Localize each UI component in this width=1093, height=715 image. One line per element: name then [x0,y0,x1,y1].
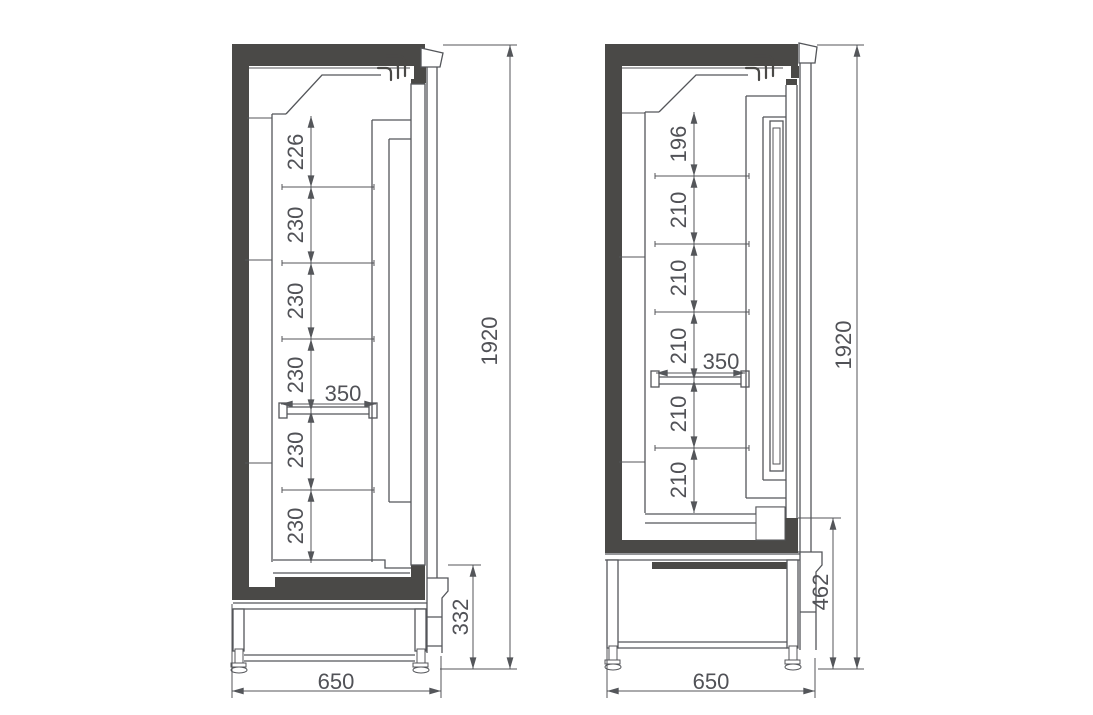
dim-label-overall-height: 1920 [477,317,502,366]
left-back-panel-brackets [245,118,272,463]
shelf [655,309,749,315]
left-air-duct-line [286,75,381,114]
dim-label-base-height: 462 [808,574,833,611]
left-front-duct-bottom-block [411,565,425,587]
left-dim-base-height: 332 [448,565,481,669]
dimensioned-shelf [282,407,375,414]
shelf [655,241,749,247]
right-base-bottom-rails [618,642,787,648]
left-back-wall [232,44,249,600]
right-base-leg [607,560,618,648]
right-dim-base-height: 462 [798,518,841,669]
left-front-outer-panel [427,67,437,578]
right-top-wall-front-block [791,66,799,78]
left-front-inner-panel [372,120,411,562]
shelf [282,184,374,190]
left-interior [245,68,411,573]
dim-label-spacing: 210 [666,192,691,229]
shelf-end-cap [279,403,287,418]
left-bottom-wall [249,587,425,600]
shelf [655,173,749,179]
right-top-wall [605,44,798,66]
dim-label-spacing: 196 [666,126,691,163]
dim-label-spacing: 210 [666,328,691,365]
dim-label-overall-width: 650 [693,669,730,694]
left-front-assembly [372,48,448,653]
left-floor [273,560,411,573]
right-bottom-wall [605,540,798,553]
right-dim-overall-width: 650 [607,604,815,698]
glass-door-frame [786,85,797,518]
shelf [282,487,374,493]
left-base-bottom-rails [244,655,415,661]
right-adjustable-foot [785,646,801,670]
dim-label-spacing: 230 [283,207,308,244]
dim-label-spacing: 230 [283,432,308,469]
right-base-leg [787,560,798,648]
left-dim-overall-width: 650 [232,604,441,698]
dim-label-spacing: 226 [283,134,308,171]
left-canopy-cap [421,48,443,67]
dim-label-spacing: 210 [666,462,691,499]
dim-label-overall-width: 650 [318,669,355,694]
cabinet-sections-drawing: 226 230 230 230 230 230 350 1920 332 650 [0,0,1093,715]
left-back-panel [272,114,286,562]
right-door-bottom-block [785,518,798,541]
right-front-outer-panel [800,63,811,552]
right-base-top-rails [605,554,800,560]
shelf [282,260,374,266]
shelf [655,445,749,451]
right-door-top-cap [786,79,797,85]
right-view: 196 210 210 210 210 210 350 1920 462 650 [605,43,864,698]
dimensioned-shelf [655,377,748,384]
dim-label-base-height: 332 [448,599,473,636]
glass-door-pane-inner [773,128,780,464]
right-air-duct-line [659,75,748,112]
dim-label-spacing: 230 [283,357,308,394]
left-front-duct [411,84,425,565]
dim-label-spacing: 230 [283,508,308,545]
right-back-panel-brackets [619,113,645,462]
dim-label-overall-height: 1920 [831,321,856,370]
left-base-top-rails [233,603,427,609]
dim-label-spacing: 210 [666,260,691,297]
left-front-kick-panel [427,578,448,653]
shelf-end-cap [369,403,377,418]
left-base-frame [231,603,429,673]
right-floor-step [756,507,785,540]
right-interior [619,68,785,540]
left-view: 226 230 230 230 230 230 350 1920 332 650 [231,44,517,698]
dim-label-shelf-depth: 350 [325,381,362,406]
technical-drawing-canvas: 226 230 230 230 230 230 350 1920 332 650 [0,0,1093,715]
dim-label-spacing: 210 [666,396,691,433]
left-base-leg [233,609,244,651]
left-base-leg [415,609,426,651]
right-front-assembly [746,43,822,650]
right-base-frame [605,554,801,670]
right-back-wall [605,44,622,540]
shelf [282,336,374,342]
right-bottom-strip [652,562,792,569]
dim-label-shelf-depth: 350 [703,349,740,374]
left-insulation-wall [232,44,426,600]
left-bottom-wall-strip [275,577,412,587]
left-dim-overall-height: 1920 [440,45,517,669]
dim-label-spacing: 230 [283,283,308,320]
right-canopy-cap [799,43,817,63]
